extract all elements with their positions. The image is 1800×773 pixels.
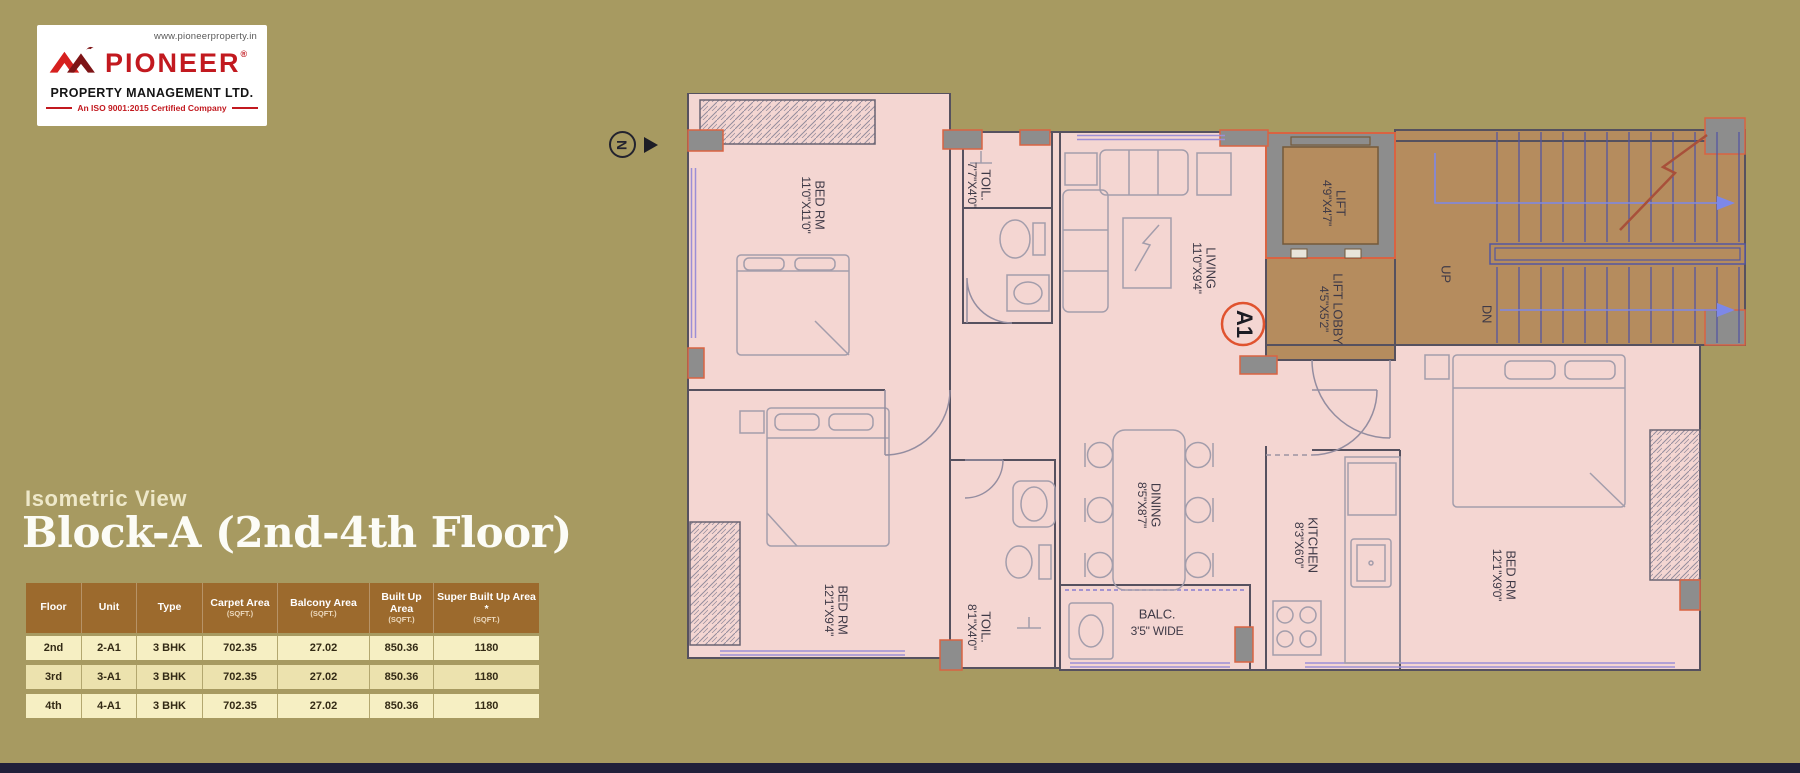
col-header-unit: Unit	[82, 583, 137, 633]
room-dims: 4'5"X5'2"	[1317, 286, 1331, 332]
cell-type: 3 BHK	[137, 694, 203, 718]
company-logo: www.pioneerproperty.in PIONEER® PROPERTY…	[37, 25, 267, 126]
page-title: Block-A (2nd-4th Floor)	[22, 508, 572, 557]
room-label: TOIL.	[979, 611, 994, 642]
room-label: LIFT LOBBY	[1331, 273, 1346, 345]
cell-type: 3 BHK	[137, 636, 203, 660]
balcony-label: BALC.	[1139, 606, 1176, 621]
roof-icon	[45, 43, 103, 83]
cell-floor: 4th	[26, 694, 82, 718]
brand-name: PIONEER®	[105, 50, 249, 77]
cell-balcony: 27.02	[278, 694, 370, 718]
table-header-row: Floor Unit Type Carpet Area(SQFT.) Balco…	[26, 583, 539, 633]
room-dims: 11'0"X9'4"	[1190, 242, 1204, 294]
iso-left-bar	[46, 107, 72, 109]
cell-carpet: 702.35	[203, 694, 278, 718]
cell-balcony: 27.02	[278, 636, 370, 660]
room-dims: 12'1"X9'0"	[1490, 549, 1504, 601]
room-dims: 8'1"X4'0"	[965, 604, 979, 650]
cell-carpet: 702.35	[203, 636, 278, 660]
floor-plan: A1 BED RM 11'0"X11'0" TOIL. 7'7"X4'0" LI…	[645, 93, 1775, 677]
room-label: LIFT	[1334, 190, 1349, 216]
area-spec-table: Floor Unit Type Carpet Area(SQFT.) Balco…	[26, 583, 539, 723]
cell-floor: 3rd	[26, 665, 82, 689]
iso-text: An ISO 9001:2015 Certified Company	[77, 103, 226, 113]
room-dims: 12'1"X9'4"	[822, 584, 836, 636]
cell-builtup: 850.36	[370, 665, 434, 689]
table-row: 4th 4-A1 3 BHK 702.35 27.02 850.36 1180	[26, 694, 539, 718]
iso-certification: An ISO 9001:2015 Certified Company	[45, 103, 259, 113]
table-body: 2nd 2-A1 3 BHK 702.35 27.02 850.36 1180 …	[26, 636, 539, 718]
room-label: DINING	[1149, 483, 1164, 527]
room-label: BED RM	[813, 180, 828, 229]
table-row: 3rd 3-A1 3 BHK 702.35 27.02 850.36 1180	[26, 665, 539, 689]
col-header-type: Type	[137, 583, 203, 633]
cell-super: 1180	[434, 694, 539, 718]
room-dims: 8'3"X6'0"	[1292, 522, 1306, 568]
page: www.pioneerproperty.in PIONEER® PROPERTY…	[0, 0, 1800, 773]
cell-unit: 4-A1	[82, 694, 137, 718]
cell-floor: 2nd	[26, 636, 82, 660]
logo-website: www.pioneerproperty.in	[45, 31, 257, 42]
room-dims: 8'5"X8'7"	[1135, 482, 1149, 528]
unit-badge-label: A1	[1232, 310, 1257, 338]
col-header-floor: Floor	[26, 583, 82, 633]
room-label: BED RM	[1504, 550, 1519, 599]
registered-mark: ®	[241, 49, 250, 59]
col-header-super: Super Built Up Area *(SQFT.)	[434, 583, 539, 633]
room-dims: 11'0"X11'0"	[799, 176, 813, 233]
north-letter: N	[615, 139, 631, 149]
cell-balcony: 27.02	[278, 665, 370, 689]
iso-right-bar	[232, 107, 258, 109]
north-indicator: N	[609, 131, 636, 158]
stairs-down-label: DN	[1480, 305, 1495, 323]
room-dims: 7'7"X4'0"	[965, 162, 979, 208]
stairs-up-label: UP	[1439, 265, 1454, 283]
cell-type: 3 BHK	[137, 665, 203, 689]
col-header-carpet: Carpet Area(SQFT.)	[203, 583, 278, 633]
logo-subtitle: PROPERTY MANAGEMENT LTD.	[45, 86, 259, 100]
room-label: KITCHEN	[1306, 517, 1321, 573]
cell-carpet: 702.35	[203, 665, 278, 689]
cell-super: 1180	[434, 636, 539, 660]
table-row: 2nd 2-A1 3 BHK 702.35 27.02 850.36 1180	[26, 636, 539, 660]
cell-unit: 3-A1	[82, 665, 137, 689]
floor-plan-drawing: A1 BED RM 11'0"X11'0" TOIL. 7'7"X4'0" LI…	[645, 93, 1775, 677]
room-label: LIVING	[1204, 247, 1219, 289]
cell-super: 1180	[434, 665, 539, 689]
footer-bar	[0, 763, 1800, 773]
apartment-fill	[688, 93, 1745, 670]
cell-builtup: 850.36	[370, 694, 434, 718]
cell-builtup: 850.36	[370, 636, 434, 660]
room-label: BED RM	[836, 585, 851, 634]
room-dims: 4'9"X4'7"	[1320, 180, 1334, 226]
cell-unit: 2-A1	[82, 636, 137, 660]
col-header-balcony: Balcony Area(SQFT.)	[278, 583, 370, 633]
col-header-builtup: Built Up Area(SQFT.)	[370, 583, 434, 633]
balcony-dims: 3'5" WIDE	[1131, 624, 1184, 638]
room-label: TOIL.	[979, 169, 994, 200]
